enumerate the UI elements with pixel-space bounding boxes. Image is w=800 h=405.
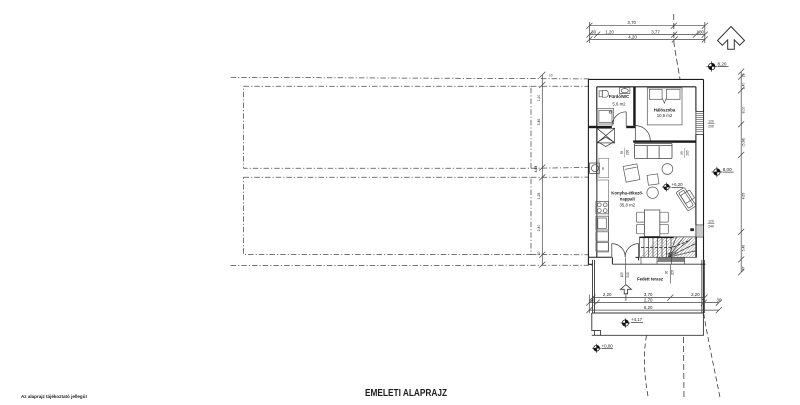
svg-text:240: 240 xyxy=(708,225,714,229)
svg-text:1,20: 1,20 xyxy=(605,29,614,34)
svg-text:4,65: 4,65 xyxy=(742,193,746,200)
svg-text:nappali: nappali xyxy=(620,196,635,201)
svg-text:200: 200 xyxy=(708,125,714,129)
svg-text:205: 205 xyxy=(686,150,690,156)
svg-text:30: 30 xyxy=(591,29,596,34)
svg-text:2,70: 2,70 xyxy=(644,297,653,302)
svg-text:105: 105 xyxy=(620,272,624,278)
svg-text:+4,17: +4,17 xyxy=(631,317,643,322)
svg-text:59: 59 xyxy=(620,151,624,155)
svg-text:Hálószoba: Hálószoba xyxy=(654,108,676,113)
svg-text:8,00: 8,00 xyxy=(723,167,732,172)
svg-text:8,20: 8,20 xyxy=(718,61,727,66)
svg-text:205: 205 xyxy=(671,270,675,276)
svg-text:+6,20: +6,20 xyxy=(672,182,684,187)
svg-text:10: 10 xyxy=(742,74,746,78)
svg-text:30: 30 xyxy=(590,297,595,302)
svg-text:120: 120 xyxy=(708,220,714,224)
svg-text:95: 95 xyxy=(680,151,684,155)
svg-text:16x17,5: 16x17,5 xyxy=(666,252,677,256)
svg-text:EMELETI ALAPRAJZ: EMELETI ALAPRAJZ xyxy=(365,388,448,399)
svg-text:30: 30 xyxy=(717,297,722,302)
svg-text:5,46: 5,46 xyxy=(742,245,746,252)
svg-text:8,00: 8,00 xyxy=(742,107,746,114)
svg-text:Fürdő/WC: Fürdő/WC xyxy=(609,94,630,99)
svg-text:210: 210 xyxy=(626,272,630,278)
svg-text:90: 90 xyxy=(665,271,669,275)
svg-text:2,20: 2,20 xyxy=(691,292,700,297)
svg-text:Az alaprajz tájékoztató jelleg: Az alaprajz tájékoztató jellegű! xyxy=(21,394,87,400)
svg-text:3,70: 3,70 xyxy=(627,20,636,25)
svg-text:10,5 m2: 10,5 m2 xyxy=(657,113,673,118)
svg-text:3,77: 3,77 xyxy=(651,29,660,34)
svg-text:+0,00: +0,00 xyxy=(602,343,614,348)
svg-text:6,20: 6,20 xyxy=(644,305,653,310)
svg-text:2,40: 2,40 xyxy=(537,225,541,232)
svg-text:35,8 m2: 35,8 m2 xyxy=(620,203,636,208)
svg-text:2,20: 2,20 xyxy=(603,292,612,297)
svg-text:1,20: 1,20 xyxy=(537,95,541,102)
svg-text:Konyha-étkező-: Konyha-étkező- xyxy=(611,190,644,195)
svg-text:4,63: 4,63 xyxy=(534,166,538,173)
svg-text:30: 30 xyxy=(537,252,541,256)
svg-text:120: 120 xyxy=(708,120,714,124)
svg-text:1,40: 1,40 xyxy=(742,83,746,90)
svg-text:4,20: 4,20 xyxy=(628,35,637,40)
svg-text:10: 10 xyxy=(549,74,553,78)
svg-text:(5,98): (5,98) xyxy=(742,138,746,147)
svg-text:180: 180 xyxy=(697,29,705,34)
svg-text:47: 47 xyxy=(742,267,746,271)
svg-text:5,6 m2: 5,6 m2 xyxy=(612,102,626,107)
svg-text:1,28: 1,28 xyxy=(537,193,541,200)
svg-text:Fedett terasz: Fedett terasz xyxy=(637,277,663,282)
svg-text:5,46: 5,46 xyxy=(537,119,541,126)
svg-text:236: 236 xyxy=(626,150,630,156)
